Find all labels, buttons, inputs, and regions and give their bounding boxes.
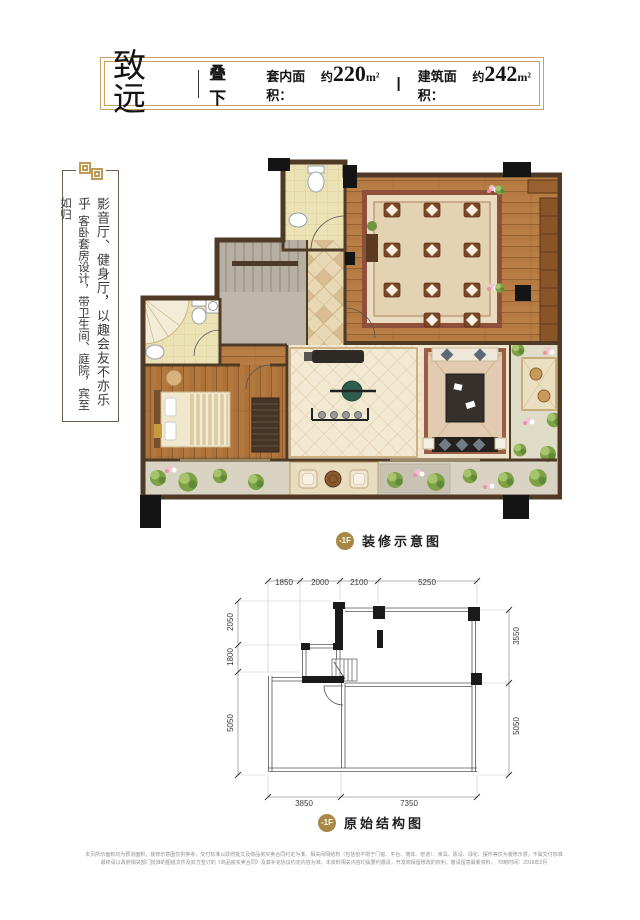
hallway-floor (220, 345, 287, 365)
structure-columns (301, 602, 482, 685)
area-separator: | (397, 75, 401, 92)
title-divider (198, 70, 199, 98)
inner-area: 套内面积： 约 220 m² (266, 63, 379, 104)
dim-right-1: 3550 (512, 616, 522, 656)
dim-top-2: 2000 (300, 578, 340, 588)
side-table (423, 438, 434, 449)
decorated-floorplan (140, 158, 562, 530)
dim-bottom-1: 3850 (284, 799, 324, 809)
page-subtitle: 叠下 (209, 59, 240, 109)
inner-area-label: 套内面积： (266, 66, 321, 104)
basket-chair (166, 370, 182, 386)
poster-page: 致远 叠下 套内面积： 约 220 m² | 建筑面积： 约 242 m² (0, 0, 640, 920)
structure-door (324, 686, 343, 705)
inner-area-approx: 约 (321, 68, 333, 85)
stool (538, 390, 550, 402)
dim-left-3: 5050 (226, 703, 236, 743)
dim-top-1: 1850 (264, 578, 304, 588)
disclaimer-line-1: 本页所示面积均为预测面积，装修示意图仅供参考，交付标准以政府批文及商品房买卖合同… (24, 851, 624, 859)
structure-floorplan (225, 568, 525, 813)
slogan-text: 影音厅、健身厅，以趣会友不亦乐乎 客卧套房设计，带卫生间、庭院，宾至如归 (56, 197, 112, 411)
av-cabinet (540, 198, 558, 343)
disclaimer-line-2: 最终请以政府相关部门批准的图纸文件及双方签订的《商品房买卖合同》及其补充协议约定… (24, 859, 624, 867)
inner-area-unit: m² (366, 70, 380, 85)
header-frame: 致远 叠下 套内面积： 约 220 m² | 建筑面积： 约 242 m² (100, 57, 544, 110)
wardrobe (252, 398, 279, 452)
caption-text: 原始结构图 (344, 813, 424, 832)
dim-bottom-2: 7350 (389, 799, 429, 809)
stool (530, 368, 542, 380)
dim-right-2: 5050 (512, 706, 522, 746)
dim-left-2: 1800 (226, 637, 236, 677)
ornament-knot-icon (76, 161, 106, 181)
build-area-label: 建筑面积： (418, 66, 473, 104)
header-inner: 致远 叠下 套内面积： 约 220 m² | 建筑面积： 约 242 m² (104, 61, 540, 106)
build-area-approx: 约 (472, 68, 484, 85)
page-title: 致远 (113, 51, 188, 117)
stair-landing (217, 292, 307, 345)
floor-badge: -1F (318, 814, 336, 832)
slogan-line-2: 客卧套房设计，带卫生间、庭院，宾至如归 (59, 197, 89, 411)
structure-plan-caption: -1F 原始结构图 (318, 813, 424, 832)
round-table (325, 471, 341, 487)
side-table (495, 438, 506, 449)
dim-top-3: 2100 (339, 578, 379, 588)
av-bench (528, 180, 558, 193)
build-area-unit: m² (517, 70, 531, 85)
render-plan-caption: -1F 装修示意图 (336, 531, 442, 550)
dim-top-4: 5250 (407, 578, 447, 588)
dim-left-1: 2050 (226, 602, 236, 642)
floor-badge: -1F (336, 532, 354, 550)
corridor-floor (307, 240, 345, 345)
inner-area-value: 220 (333, 63, 366, 85)
living-furniture (423, 348, 506, 454)
table (446, 374, 484, 422)
build-area-value: 242 (484, 63, 517, 85)
build-area: 建筑面积： 约 242 m² (418, 63, 531, 104)
caption-text: 装修示意图 (362, 531, 442, 550)
disclaimer: 本页所示面积均为预测面积，装修示意图仅供参考，交付标准以政府批文及商品房买卖合同… (24, 851, 624, 867)
treadmill (312, 350, 364, 363)
slogan-box: 影音厅、健身厅，以趣会友不亦乐乎 客卧套房设计，带卫生间、庭院，宾至如归 (62, 170, 119, 422)
